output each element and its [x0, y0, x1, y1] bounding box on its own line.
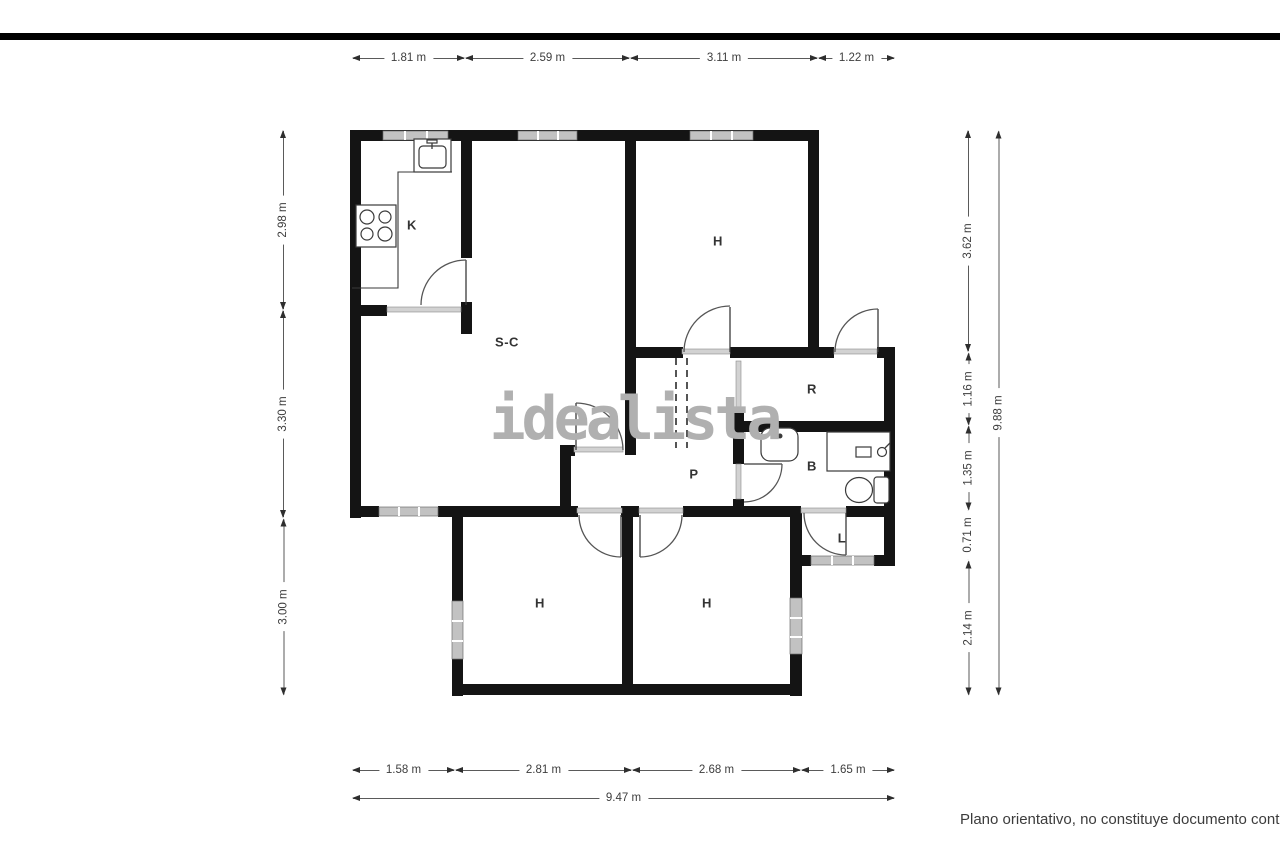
dimension-label: 0.71 m: [962, 510, 974, 559]
dimension-left-2: 3.00 m: [278, 518, 288, 695]
arrow-icon: [630, 55, 638, 61]
dimension-right-4: 2.14 m: [963, 560, 973, 695]
room-label-bedroom-top: H: [713, 234, 723, 249]
dimension-label: 9.47 m: [599, 792, 648, 804]
arrow-icon: [352, 767, 360, 773]
arrow-icon: [280, 130, 286, 138]
arrow-icon: [965, 130, 971, 138]
arrow-icon: [622, 55, 630, 61]
room-label-corridor: P: [689, 467, 698, 482]
window: [811, 556, 874, 565]
arrow-icon: [280, 518, 286, 526]
dimension-label: 1.58 m: [379, 764, 428, 776]
dimension-bottom-1: 2.81 m: [455, 765, 632, 775]
arrow-icon: [965, 352, 971, 360]
dimension-top-0: 1.81 m: [352, 53, 465, 63]
dimension-label: 2.14 m: [962, 603, 974, 652]
kitchen-sink: [414, 139, 451, 172]
arrow-icon: [465, 55, 473, 61]
dimension-bottom-3: 1.65 m: [801, 765, 895, 775]
dimension-label: 3.11 m: [700, 52, 748, 64]
arrow-icon: [965, 344, 971, 352]
arrow-icon: [965, 417, 971, 425]
dimension-label: 3.30 m: [277, 389, 289, 438]
dimension-label: 1.22 m: [832, 52, 881, 64]
door-arc: [744, 464, 782, 502]
disclaimer-text: Plano orientativo, no constituye documen…: [960, 811, 1280, 828]
dimension-label: 1.35 m: [962, 443, 974, 492]
door-arc: [640, 515, 682, 557]
dimension-label: 2.98 m: [277, 195, 289, 244]
dimension-label: 2.68 m: [692, 764, 741, 776]
arrow-icon: [965, 687, 971, 695]
window: [379, 507, 438, 516]
arrow-icon: [624, 767, 632, 773]
arrow-icon: [801, 767, 809, 773]
dimension-left-1: 3.30 m: [278, 310, 288, 518]
arrow-icon: [457, 55, 465, 61]
dimension-bottom-0: 1.58 m: [352, 765, 455, 775]
room-label-kitchen: K: [407, 218, 417, 233]
dimension-right-1: 1.16 m: [963, 352, 973, 425]
dimension-label: 2.81 m: [519, 764, 568, 776]
arrow-icon: [995, 130, 1001, 138]
arrow-icon: [455, 767, 463, 773]
arrow-icon: [632, 767, 640, 773]
dimension-right-2: 1.35 m: [963, 425, 973, 510]
watermark: idealista: [479, 388, 789, 450]
room-label-bedroom-bottom-left: H: [535, 596, 545, 611]
arrow-icon: [280, 310, 286, 318]
arrow-icon: [965, 560, 971, 568]
dimension-right-total: 9.88 m: [993, 130, 1003, 695]
dimension-label: 9.88 m: [992, 388, 1004, 437]
stove: [356, 205, 396, 247]
vanity-counter: [827, 432, 890, 471]
dimension-label: 2.59 m: [523, 52, 572, 64]
window: [790, 598, 802, 654]
arrow-icon: [280, 510, 286, 518]
dimension-right-3: 0.71 m: [963, 510, 973, 560]
door-arc: [421, 260, 466, 305]
dimension-label: 1.65 m: [823, 764, 872, 776]
room-label-laundry: L: [838, 531, 846, 546]
arrow-icon: [995, 687, 1001, 695]
dimension-top-3: 1.22 m: [818, 53, 895, 63]
dimension-top-1: 2.59 m: [465, 53, 630, 63]
dimension-left-0: 2.98 m: [278, 130, 288, 310]
dimension-bottom-2: 2.68 m: [632, 765, 801, 775]
arrow-icon: [818, 55, 826, 61]
window: [452, 601, 463, 659]
door-arc: [579, 515, 621, 557]
arrow-icon: [810, 55, 818, 61]
dimension-bottom-total: 9.47 m: [352, 793, 895, 803]
arrow-icon: [887, 767, 895, 773]
door-arc: [684, 306, 730, 352]
dimension-right-0: 3.62 m: [963, 130, 973, 352]
window: [690, 131, 753, 140]
dimension-top-2: 3.11 m: [630, 53, 818, 63]
arrow-icon: [887, 55, 895, 61]
dimension-label: 1.16 m: [962, 364, 974, 413]
arrow-icon: [965, 425, 971, 433]
arrow-icon: [280, 687, 286, 695]
dimension-label: 3.00 m: [277, 582, 289, 631]
room-label-bedroom-bottom-right: H: [702, 596, 712, 611]
arrow-icon: [280, 302, 286, 310]
arrow-icon: [965, 502, 971, 510]
arrow-icon: [352, 55, 360, 61]
arrow-icon: [447, 767, 455, 773]
dimension-label: 3.62 m: [962, 216, 974, 265]
room-label-hall: R: [807, 382, 817, 397]
dimension-label: 1.81 m: [384, 52, 433, 64]
arrow-icon: [887, 795, 895, 801]
door-arc: [835, 309, 878, 352]
arrow-icon: [352, 795, 360, 801]
arrow-icon: [793, 767, 801, 773]
window: [518, 131, 577, 140]
room-label-living-dining: S-C: [495, 335, 519, 350]
toilet: [846, 477, 890, 503]
room-label-bathroom: B: [807, 459, 817, 474]
